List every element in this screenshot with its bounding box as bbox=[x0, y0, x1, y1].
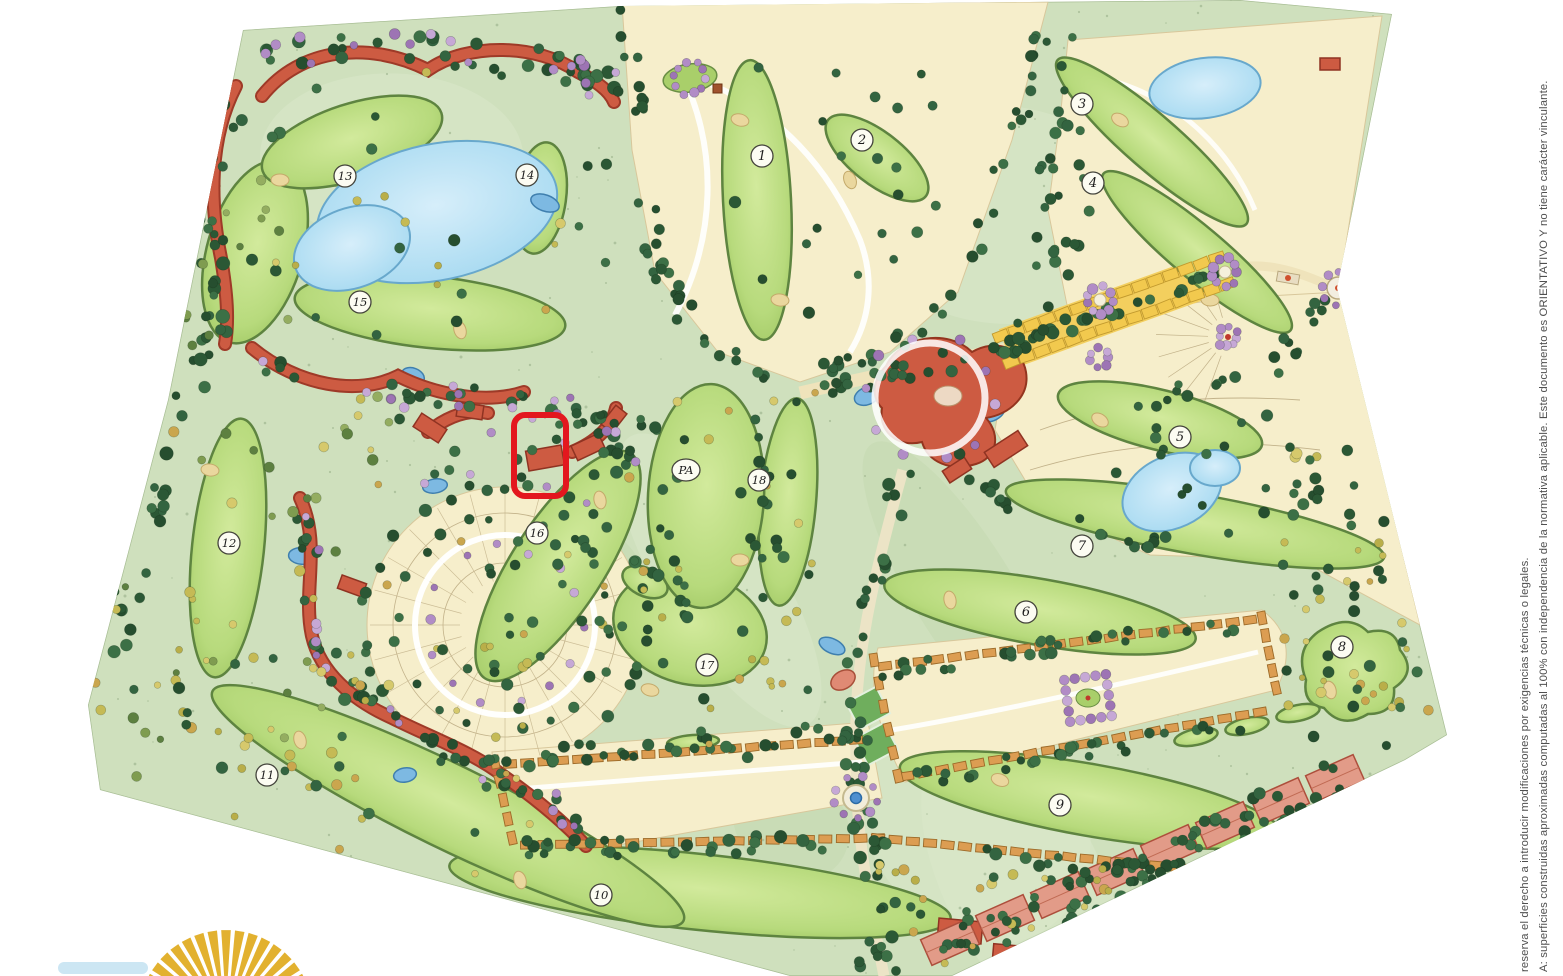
hole-marker: 17 bbox=[696, 654, 718, 676]
disclaimer-text: A: superficies construidas aproximadas c… bbox=[1519, 80, 1550, 972]
hole-marker: 4 bbox=[1082, 172, 1104, 194]
resort-masterplan-map: 123456789101112131415161718PA A: superfi… bbox=[0, 0, 1563, 976]
map-area: 123456789101112131415161718PA bbox=[88, 0, 1447, 976]
hole-number-label: 7 bbox=[1078, 539, 1087, 554]
hole-marker: 7 bbox=[1071, 535, 1093, 557]
hole-number-label: 12 bbox=[222, 536, 237, 550]
hole-marker: 2 bbox=[851, 129, 873, 151]
hole-marker: 11 bbox=[256, 764, 278, 786]
hole-number-label: 10 bbox=[594, 888, 609, 902]
hole-number-label: 1 bbox=[758, 149, 766, 164]
hole-marker: 6 bbox=[1015, 601, 1037, 623]
hole-number-label: 14 bbox=[520, 168, 535, 182]
hole-number-label: 2 bbox=[857, 133, 866, 148]
hole-marker: 16 bbox=[526, 522, 548, 544]
hole-marker: 8 bbox=[1331, 636, 1353, 658]
hole-number-label: 17 bbox=[700, 658, 715, 672]
hole-number-label: 15 bbox=[353, 295, 368, 309]
hole-number-label: 13 bbox=[338, 169, 353, 183]
hole-marker: 15 bbox=[349, 291, 371, 313]
hole-number-label: 11 bbox=[260, 768, 275, 782]
disclaimer-line-2: reserva el derecho a introducir modifica… bbox=[1519, 557, 1531, 972]
hole-marker: 9 bbox=[1049, 794, 1071, 816]
hole-number-label: 18 bbox=[752, 473, 767, 487]
hole-marker: 3 bbox=[1071, 93, 1093, 115]
hole-number-label: 8 bbox=[1338, 640, 1346, 655]
hole-marker: 5 bbox=[1169, 426, 1191, 448]
hole-marker: 14 bbox=[516, 164, 538, 186]
hole-number-label: 6 bbox=[1022, 605, 1030, 620]
masterplan-page: 123456789101112131415161718PA A: superfi… bbox=[0, 0, 1563, 976]
hole-marker: 1 bbox=[751, 145, 773, 167]
hole-marker: 13 bbox=[334, 165, 356, 187]
sun-logo bbox=[138, 930, 314, 976]
hole-number-label: 5 bbox=[1176, 430, 1184, 445]
hole-marker: 18 bbox=[748, 469, 770, 491]
hole-marker: 12 bbox=[218, 532, 240, 554]
hole-number-label: 4 bbox=[1088, 176, 1097, 191]
disclaimer-line-1: A: superficies construidas aproximadas c… bbox=[1538, 80, 1550, 972]
hole-number-label: 16 bbox=[530, 526, 545, 540]
hole-marker: 10 bbox=[590, 884, 612, 906]
hole-number-label: 3 bbox=[1078, 97, 1086, 112]
hole-number-label: 9 bbox=[1056, 798, 1064, 813]
hole-number-label: PA bbox=[678, 463, 694, 477]
wave-logo-fragment bbox=[58, 962, 148, 974]
hole-marker: PA bbox=[672, 459, 700, 481]
